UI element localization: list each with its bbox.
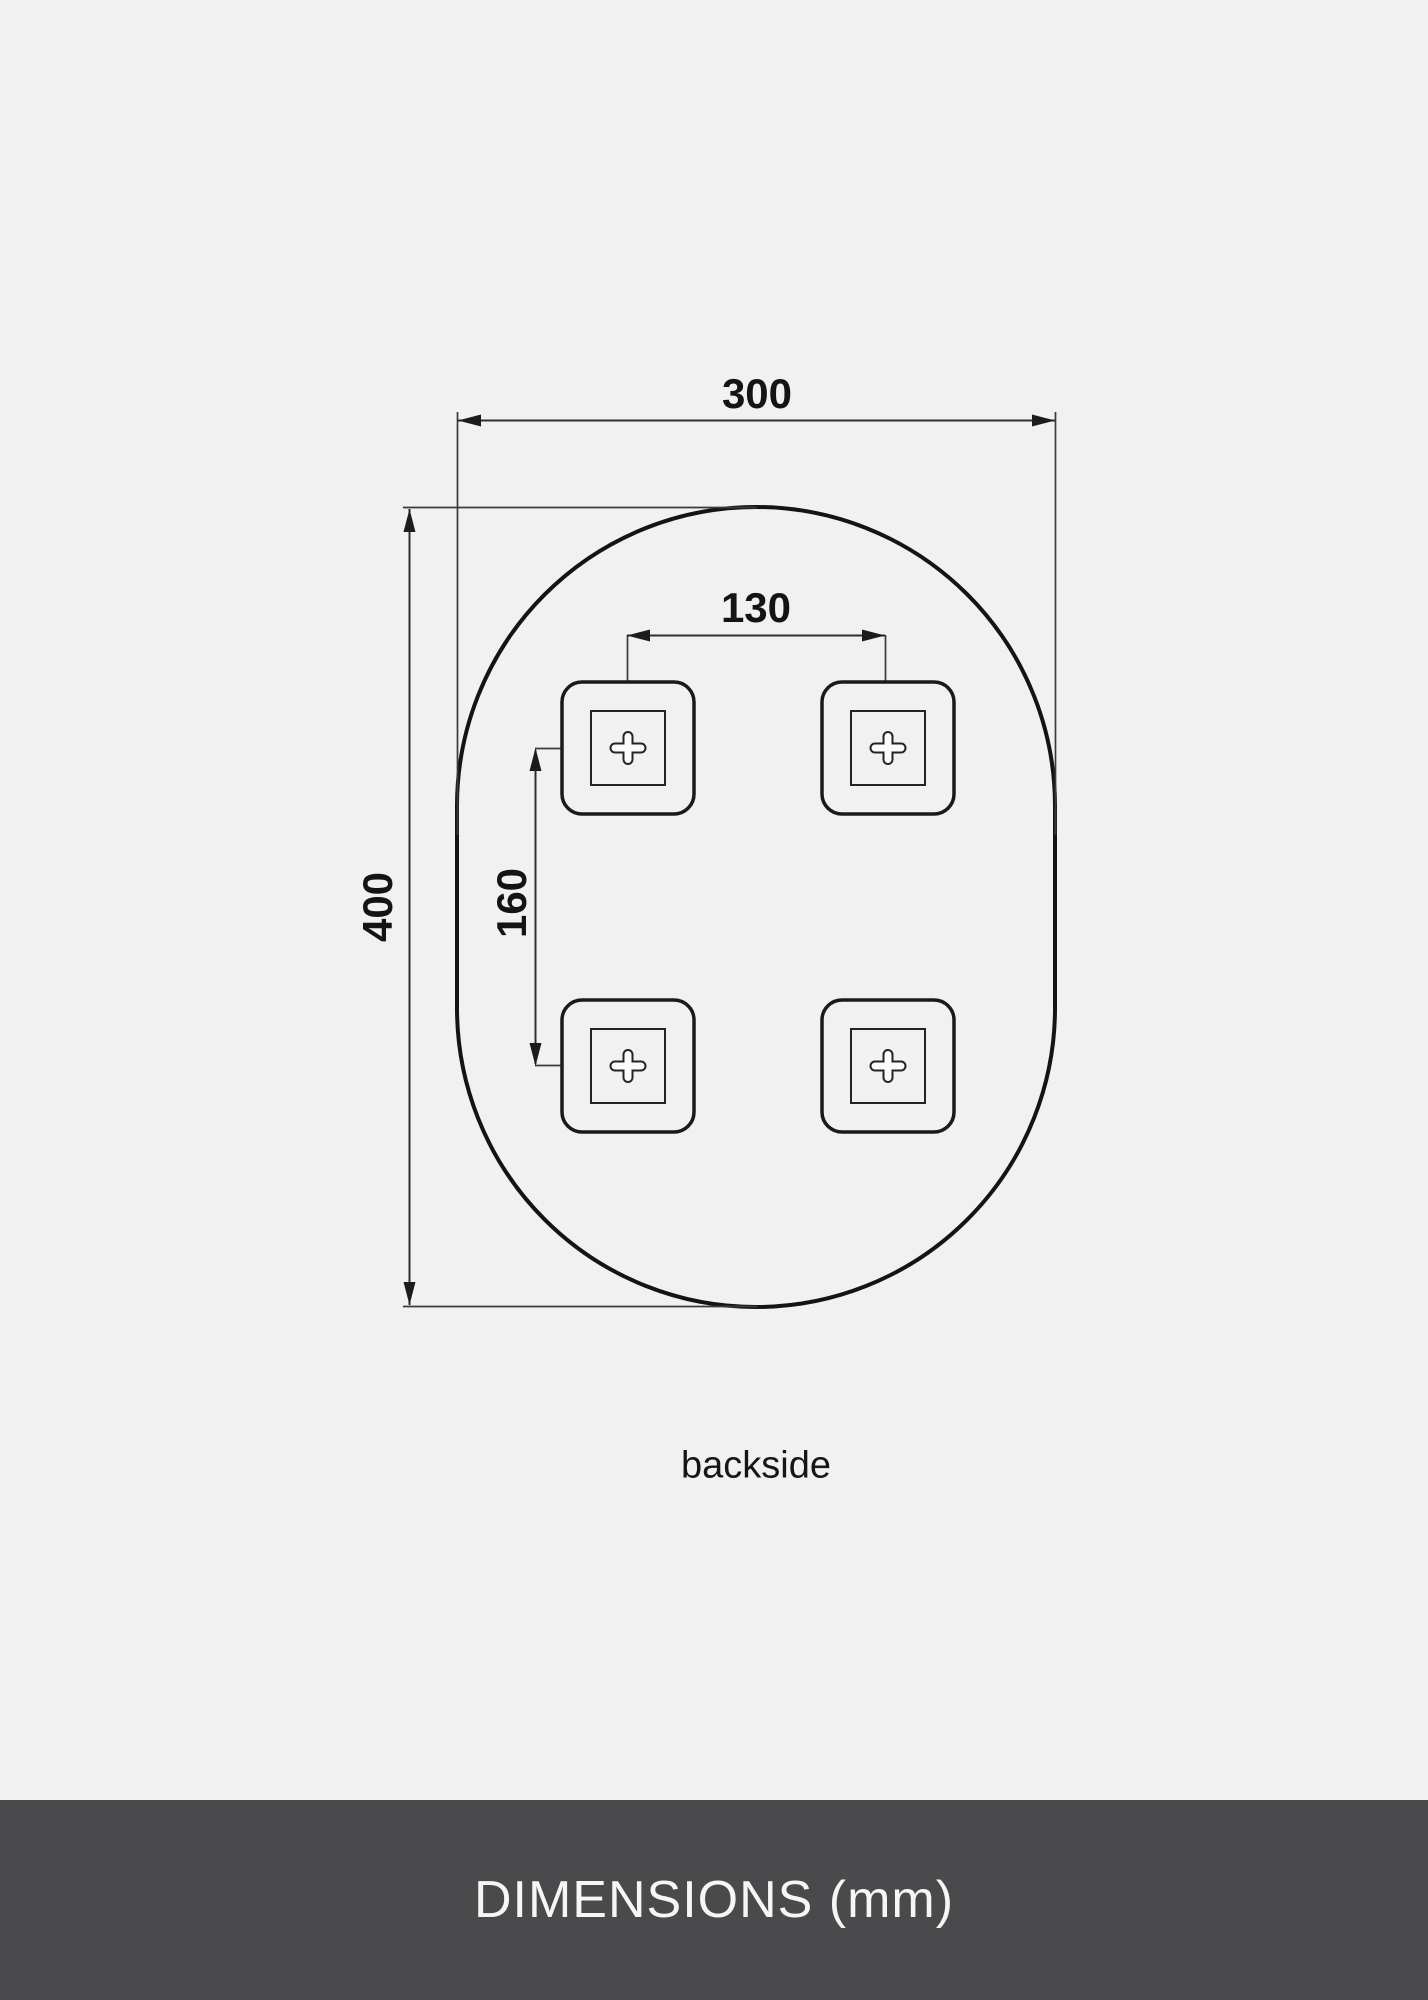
mounting-bracket-top-right bbox=[822, 682, 954, 814]
dim-width-label: 300 bbox=[722, 370, 792, 417]
footer-title: DIMENSIONS (mm) bbox=[474, 1870, 954, 1930]
arrowhead-down-icon bbox=[404, 1282, 416, 1305]
arrowhead-right-icon bbox=[1032, 415, 1055, 427]
arrowhead-left-icon bbox=[627, 630, 650, 642]
mounting-bracket-top-left bbox=[562, 682, 694, 814]
dim-bracket-y-label: 160 bbox=[488, 868, 535, 938]
arrowhead-up-icon bbox=[530, 748, 542, 771]
mounting-bracket-bottom-left bbox=[562, 1000, 694, 1132]
dimension-diagram-page: 300 400 130 160 bbox=[0, 0, 1428, 2000]
arrowhead-left-icon bbox=[458, 415, 481, 427]
dim-height-label: 400 bbox=[354, 872, 401, 942]
backside-caption: backside bbox=[681, 1445, 831, 1488]
footer-bar: DIMENSIONS (mm) bbox=[0, 1800, 1428, 2000]
arrowhead-up-icon bbox=[404, 509, 416, 532]
dim-overall-height: 400 bbox=[354, 508, 757, 1307]
dim-bracket-spacing-vertical: 160 bbox=[488, 748, 563, 1066]
arrowhead-right-icon bbox=[862, 630, 885, 642]
dim-bracket-x-label: 130 bbox=[721, 584, 791, 631]
dim-bracket-spacing-horizontal: 130 bbox=[627, 584, 886, 681]
technical-drawing: 300 400 130 160 bbox=[0, 0, 1428, 2000]
mounting-bracket-bottom-right bbox=[822, 1000, 954, 1132]
arrowhead-down-icon bbox=[530, 1043, 542, 1066]
